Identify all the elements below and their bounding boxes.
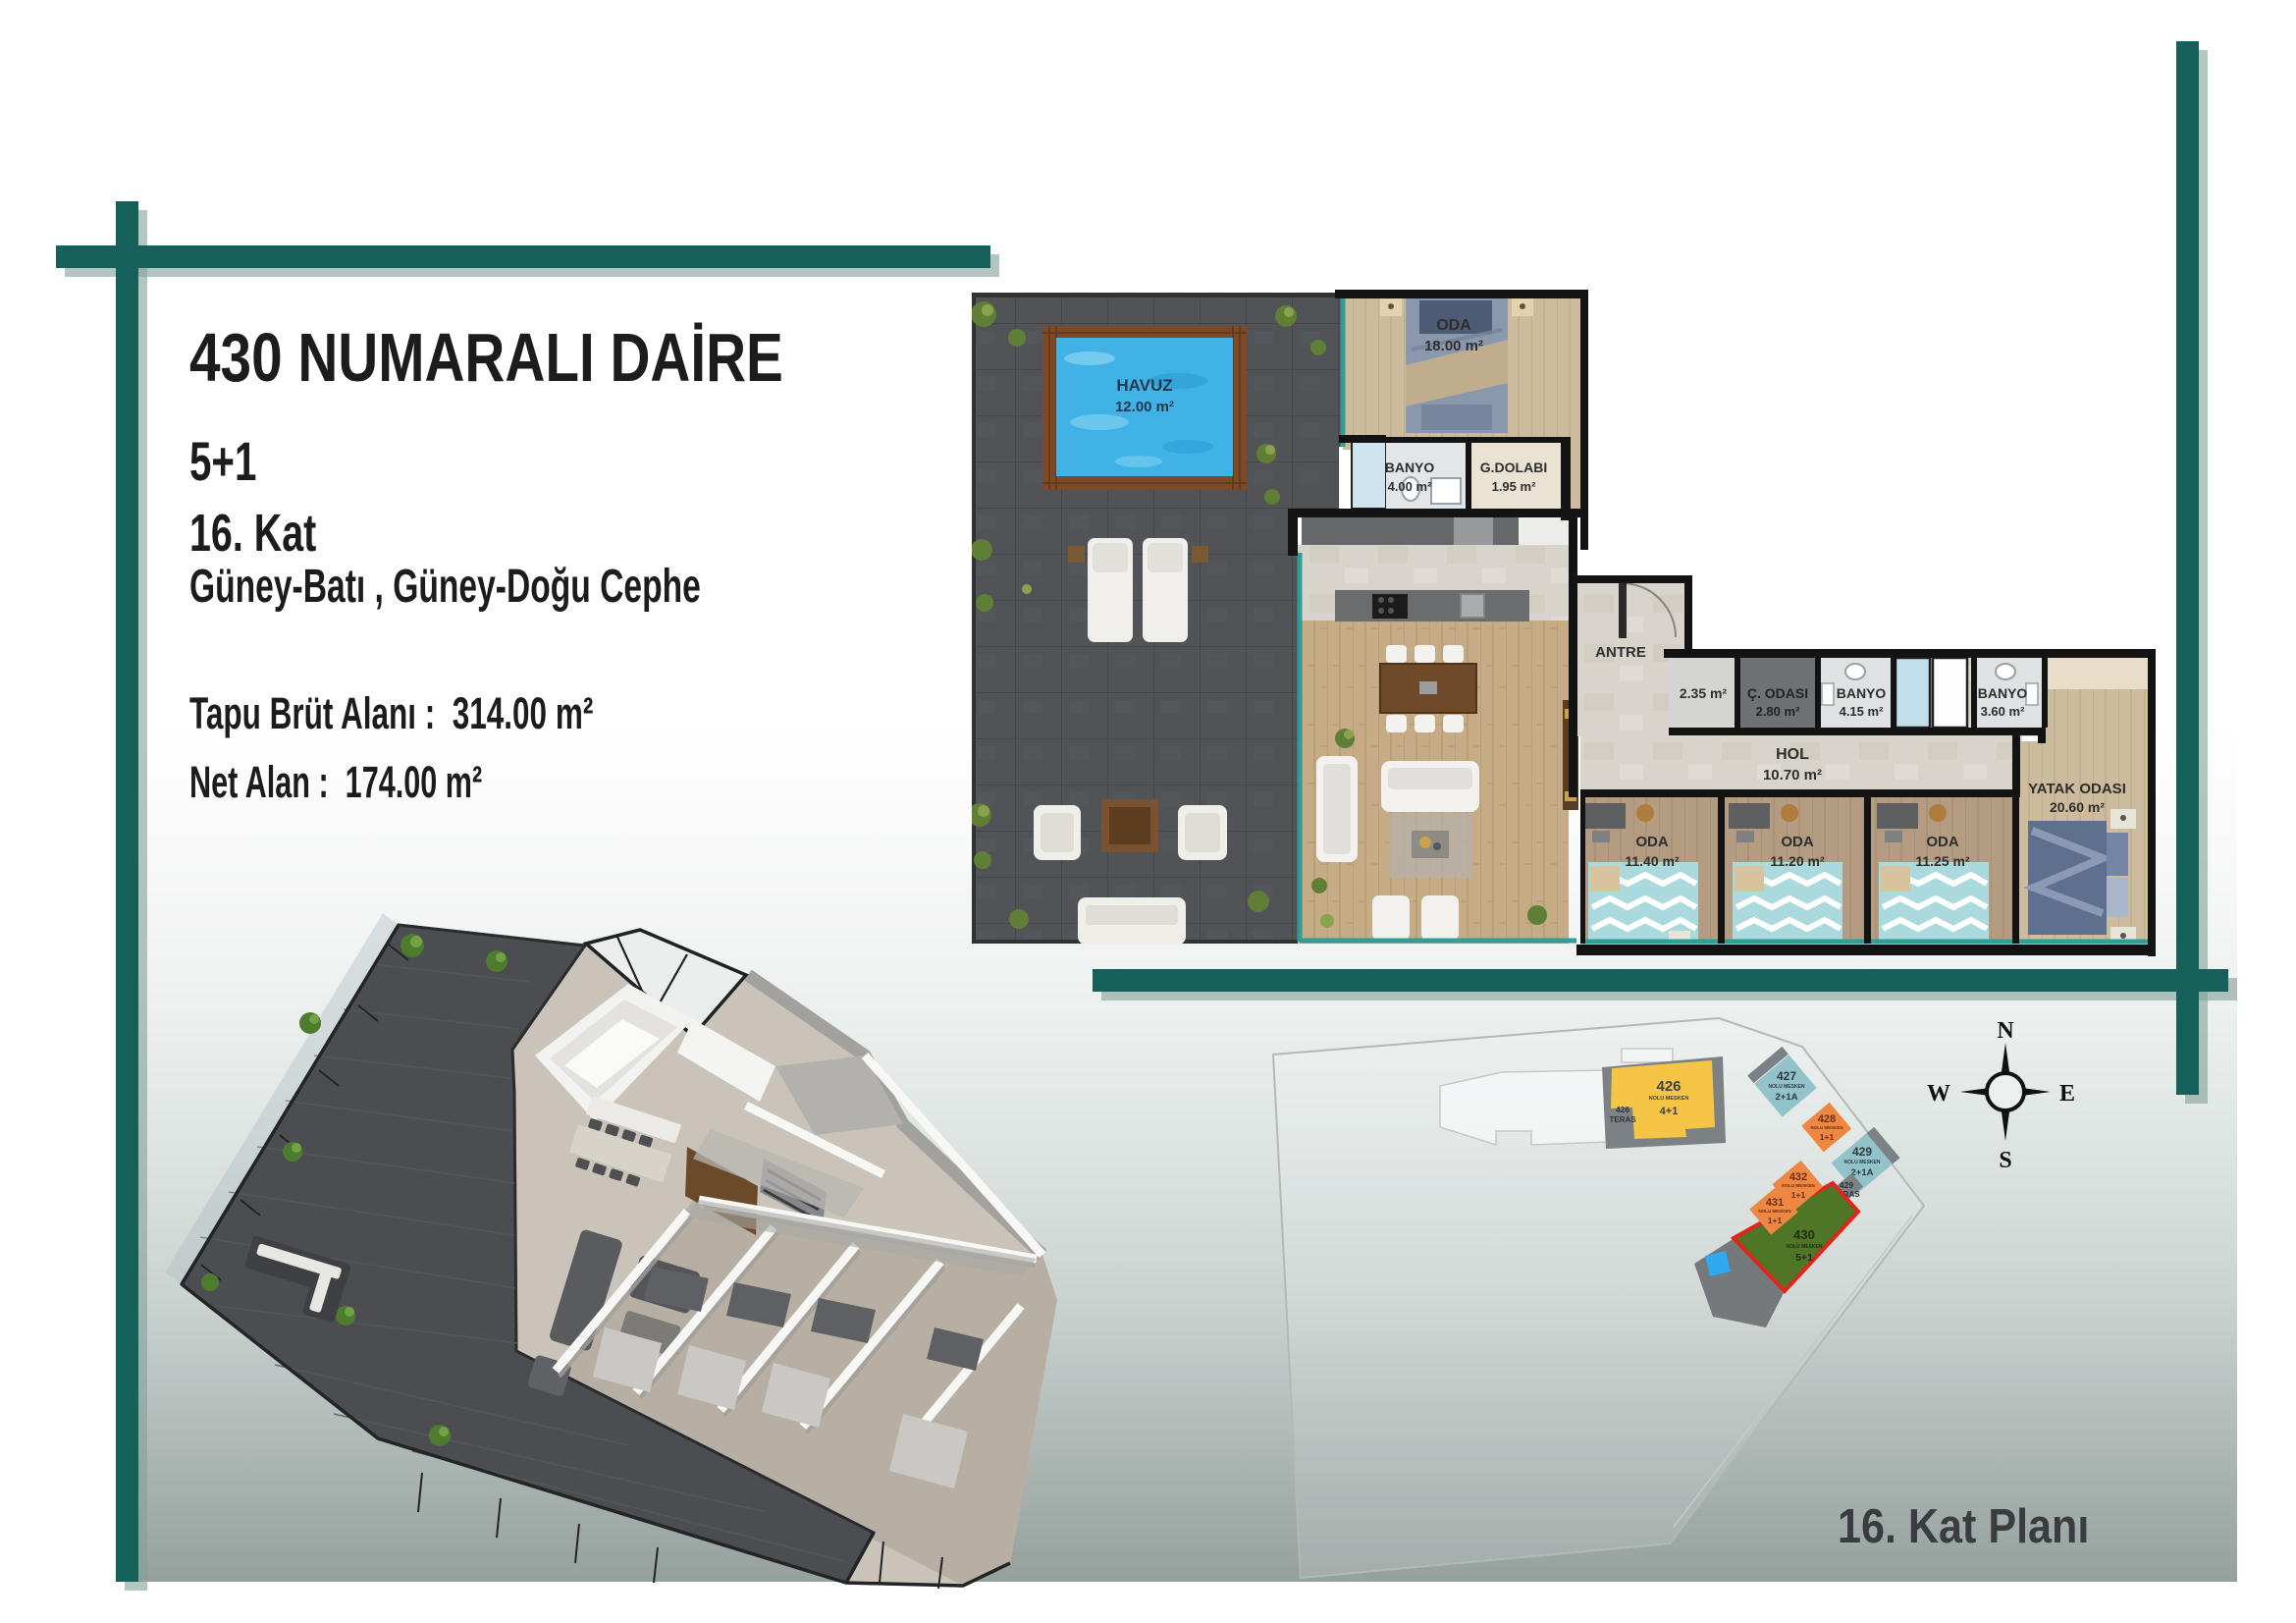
svg-text:ODA: ODA — [1635, 834, 1669, 850]
svg-text:5+1: 5+1 — [1795, 1252, 1813, 1264]
svg-text:426: 426 — [1656, 1078, 1681, 1095]
svg-text:HAVUZ: HAVUZ — [1116, 376, 1172, 395]
svg-text:11.20 m²: 11.20 m² — [1770, 853, 1825, 869]
svg-text:427: 427 — [1777, 1069, 1796, 1083]
svg-text:4.00 m²: 4.00 m² — [1388, 479, 1432, 494]
svg-text:NOLU MESKEN: NOLU MESKEN — [1769, 1084, 1805, 1090]
svg-text:TERAS: TERAS — [1609, 1115, 1636, 1124]
svg-text:ODA: ODA — [1781, 834, 1814, 850]
svg-text:11.25 m²: 11.25 m² — [1915, 853, 1970, 869]
svg-text:NOLU MESKEN: NOLU MESKEN — [1844, 1160, 1881, 1165]
svg-text:2+1A: 2+1A — [1776, 1092, 1798, 1103]
svg-text:N: N — [1997, 1018, 2014, 1044]
svg-text:20.60 m²: 20.60 m² — [2050, 799, 2105, 815]
svg-text:428: 428 — [1818, 1113, 1836, 1125]
svg-text:2.35 m²: 2.35 m² — [1680, 685, 1728, 701]
svg-text:BANYO: BANYO — [1385, 460, 1435, 475]
svg-text:2.80 m²: 2.80 m² — [1756, 704, 1800, 719]
svg-text:11.40 m²: 11.40 m² — [1625, 853, 1680, 869]
svg-text:1.95 m²: 1.95 m² — [1492, 479, 1536, 494]
svg-text:432: 432 — [1789, 1171, 1807, 1183]
svg-text:NOLU MESKEN: NOLU MESKEN — [1787, 1244, 1823, 1250]
svg-text:NOLU MESKEN: NOLU MESKEN — [1782, 1183, 1814, 1188]
svg-text:4.15 m²: 4.15 m² — [1840, 704, 1884, 719]
svg-text:YATAK ODASI: YATAK ODASI — [2028, 781, 2126, 797]
svg-text:431: 431 — [1766, 1197, 1784, 1209]
svg-text:HOL: HOL — [1776, 746, 1809, 763]
svg-text:1+1: 1+1 — [1820, 1132, 1835, 1142]
svg-text:12.00 m²: 12.00 m² — [1115, 399, 1174, 415]
svg-text:4+1: 4+1 — [1660, 1106, 1679, 1117]
svg-text:NOLU MESKEN: NOLU MESKEN — [1649, 1096, 1689, 1102]
svg-text:BANYO: BANYO — [1837, 685, 1887, 701]
svg-text:1+1: 1+1 — [1768, 1216, 1783, 1225]
svg-text:10.70 m²: 10.70 m² — [1763, 767, 1822, 784]
svg-text:ODA: ODA — [1436, 317, 1471, 334]
svg-text:E: E — [2059, 1081, 2075, 1107]
svg-text:G.DOLABI: G.DOLABI — [1480, 460, 1547, 475]
svg-text:ODA: ODA — [1926, 834, 1959, 850]
svg-text:Ç. ODASI: Ç. ODASI — [1747, 685, 1808, 701]
svg-text:16. Kat Planı: 16. Kat Planı — [1838, 1498, 2089, 1552]
svg-text:430: 430 — [1793, 1227, 1815, 1242]
svg-text:3.60 m²: 3.60 m² — [1981, 704, 2025, 719]
svg-text:18.00 m²: 18.00 m² — [1424, 338, 1483, 354]
svg-text:426: 426 — [1616, 1105, 1629, 1114]
svg-text:BANYO: BANYO — [1978, 685, 2028, 701]
svg-text:S: S — [1999, 1148, 2011, 1173]
svg-text:429: 429 — [1840, 1180, 1853, 1190]
svg-text:NOLU MESKEN: NOLU MESKEN — [1810, 1125, 1842, 1130]
svg-text:W: W — [1927, 1081, 1950, 1107]
svg-text:429: 429 — [1852, 1145, 1872, 1159]
svg-text:1+1: 1+1 — [1791, 1190, 1806, 1200]
svg-text:NOLU MESKEN: NOLU MESKEN — [1758, 1209, 1790, 1214]
